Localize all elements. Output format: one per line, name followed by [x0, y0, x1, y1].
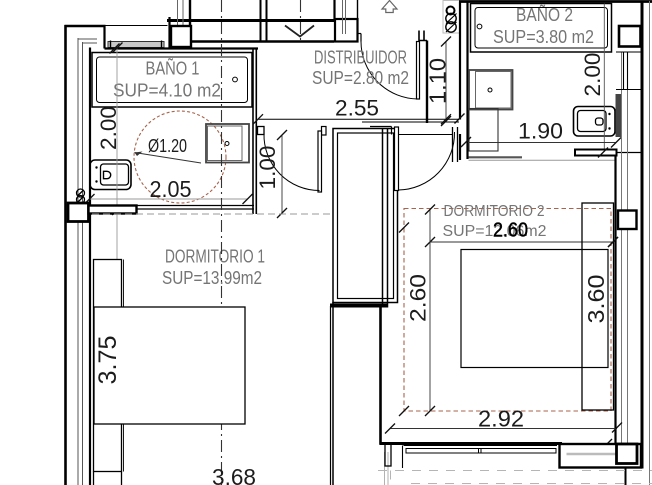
- svg-text:2.55: 2.55: [335, 96, 379, 121]
- svg-text:2.92: 2.92: [478, 406, 524, 432]
- svg-text:DORMITORIO 2: DORMITORIO 2: [444, 203, 545, 220]
- svg-text:DORMITORIO 1: DORMITORIO 1: [165, 247, 265, 267]
- svg-text:1.00: 1.00: [255, 146, 280, 190]
- svg-text:2.05: 2.05: [150, 176, 192, 202]
- svg-text:SUP=4.10 m2: SUP=4.10 m2: [113, 81, 221, 101]
- svg-text:SUP=2.80 m2: SUP=2.80 m2: [312, 68, 409, 88]
- svg-text:SUP=3.80 m2: SUP=3.80 m2: [493, 27, 594, 47]
- svg-text:BAÑO 2: BAÑO 2: [516, 4, 573, 25]
- svg-text:Ø1.20: Ø1.20: [148, 136, 187, 156]
- svg-text:SUP=13.99m2: SUP=13.99m2: [162, 268, 262, 288]
- svg-text:3.75: 3.75: [94, 336, 122, 385]
- svg-text:BAÑO 1: BAÑO 1: [146, 58, 200, 79]
- svg-text:2.00: 2.00: [580, 53, 605, 97]
- svg-text:1.10: 1.10: [425, 58, 451, 104]
- svg-text:2.00: 2.00: [96, 106, 121, 150]
- svg-text:3.60: 3.60: [583, 275, 609, 324]
- svg-text:1.90: 1.90: [518, 119, 563, 144]
- svg-text:DISTRIBUIDOR: DISTRIBUIDOR: [314, 48, 407, 68]
- svg-text:3.68: 3.68: [212, 464, 256, 485]
- svg-text:2.60: 2.60: [493, 220, 528, 242]
- svg-text:2.60: 2.60: [406, 274, 431, 322]
